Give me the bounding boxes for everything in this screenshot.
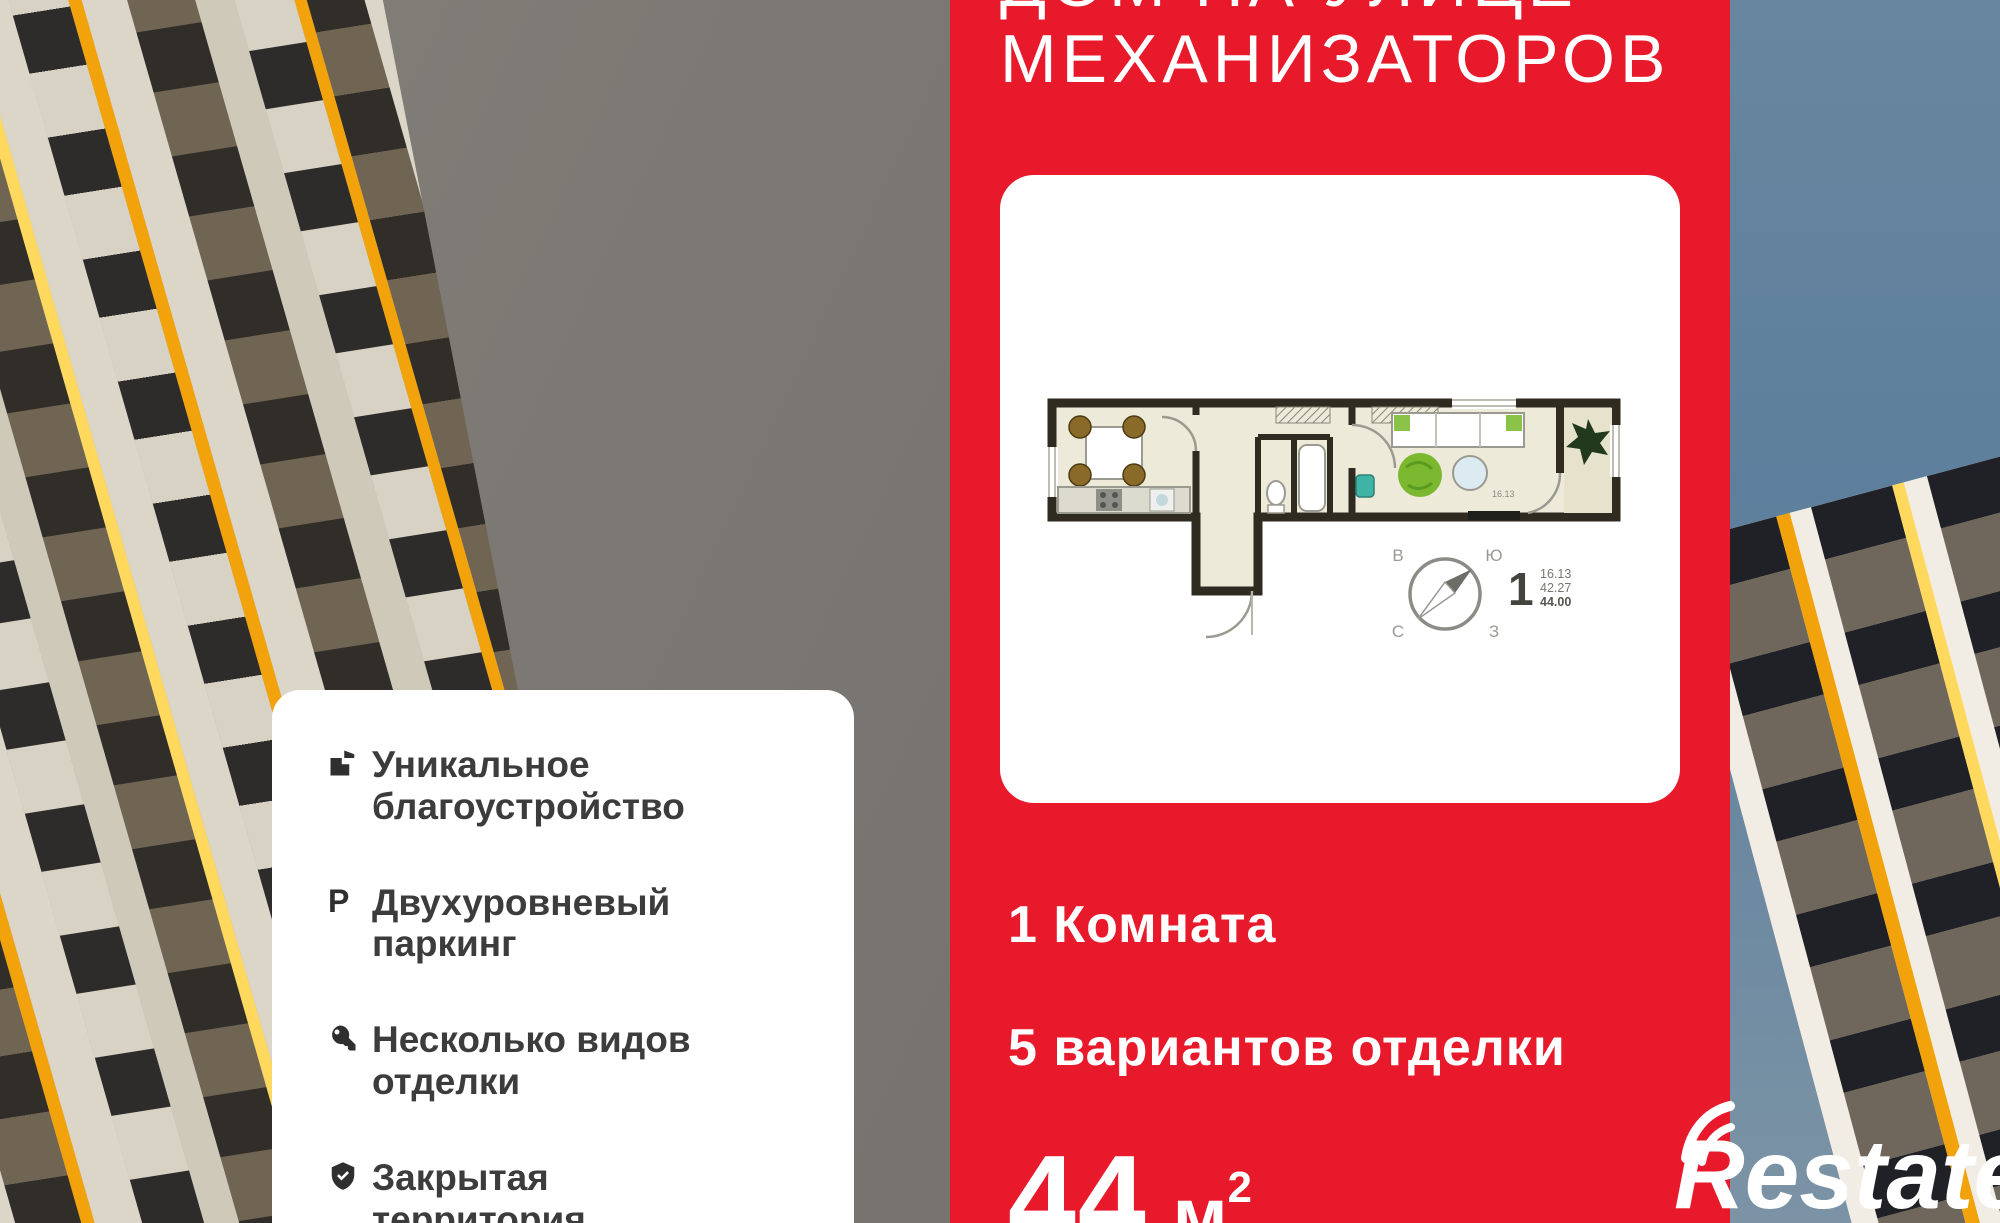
logo-text: Restate bbox=[1674, 1119, 2000, 1223]
apartment-area: 42.27 bbox=[1540, 581, 1571, 595]
shield-check-icon bbox=[328, 1161, 358, 1191]
rooms-number: 1 bbox=[1508, 563, 1534, 615]
feature-text: Двухуровневый паркинг bbox=[372, 882, 717, 966]
floor-plan: 16.13 В Ю С З 1 16.13 42.27 bbox=[1000, 175, 1680, 803]
compass: В Ю С З bbox=[1392, 546, 1503, 641]
feature-item-closed-territory: Закрытая территория bbox=[328, 1157, 854, 1223]
feature-text: Несколько видов отделки bbox=[372, 1019, 717, 1103]
window-balcony bbox=[1610, 425, 1622, 477]
sofa-plant bbox=[1394, 415, 1410, 431]
feature-item-parking: Р Двухуровневый паркинг bbox=[328, 882, 854, 966]
sofa-plant bbox=[1506, 415, 1522, 431]
restate-logo: Restate bbox=[1652, 1096, 2000, 1223]
total-area-line: 44 м2 bbox=[1008, 1128, 1252, 1223]
compass-south: Ю bbox=[1485, 546, 1502, 565]
stove bbox=[1096, 489, 1122, 511]
washbasin bbox=[1356, 475, 1374, 497]
entry-door-arc bbox=[1206, 591, 1252, 637]
listing-ad-banner: ДОМ НА УЛИЦЕ МЕХАНИЗАТОРОВ bbox=[0, 0, 2000, 1223]
building-photo-right bbox=[1730, 0, 2000, 1223]
round-table bbox=[1453, 456, 1487, 490]
bathtub bbox=[1299, 445, 1325, 511]
complex-title-line2: МЕХАНИЗАТОРОВ bbox=[1000, 20, 1670, 98]
area-superscript: 2 bbox=[1227, 1163, 1251, 1212]
sofa bbox=[1392, 413, 1524, 447]
parking-icon: Р bbox=[328, 886, 358, 916]
feature-item-finishes: Несколько видов отделки bbox=[328, 1019, 854, 1103]
feature-text: Закрытая территория bbox=[372, 1157, 717, 1223]
info-panel: ДОМ НА УЛИЦЕ МЕХАНИЗАТОРОВ bbox=[950, 0, 1730, 1223]
chair bbox=[1069, 416, 1091, 438]
living-area-label: 16.13 bbox=[1492, 489, 1515, 499]
wardrobe-hall bbox=[1276, 407, 1330, 423]
features-card: Уникальное благоустройство Р Двухуровнев… bbox=[272, 690, 854, 1223]
rooms-count-line: 1 Комната bbox=[1008, 895, 1276, 955]
finish-options-line: 5 вариантов отделки bbox=[1008, 1018, 1566, 1078]
tv bbox=[1468, 511, 1520, 520]
area-unit: м2 bbox=[1152, 1173, 1252, 1223]
area-value: 44 bbox=[1008, 1130, 1148, 1223]
chair bbox=[1123, 464, 1145, 486]
living-area: 16.13 bbox=[1540, 567, 1571, 581]
key-icon bbox=[328, 1023, 358, 1053]
feature-item-landscaping: Уникальное благоустройство bbox=[328, 744, 854, 828]
chair bbox=[1069, 464, 1091, 486]
compass-west: З bbox=[1489, 622, 1499, 641]
feature-text: Уникальное благоустройство bbox=[372, 744, 717, 828]
toilet bbox=[1267, 481, 1285, 505]
compass-east: В bbox=[1392, 546, 1403, 565]
areas-block: 1 16.13 42.27 44.00 bbox=[1508, 563, 1571, 615]
plant-large bbox=[1398, 453, 1442, 497]
floor-plan-card: 16.13 В Ю С З 1 16.13 42.27 bbox=[1000, 175, 1680, 803]
compass-north: С bbox=[1392, 622, 1404, 641]
window-top bbox=[1452, 397, 1516, 409]
building-icon bbox=[328, 748, 358, 778]
window-left bbox=[1046, 447, 1058, 497]
chair bbox=[1123, 416, 1145, 438]
complex-title-line1-cropped: ДОМ НА УЛИЦЕ bbox=[1000, 0, 1578, 22]
total-area: 44.00 bbox=[1540, 595, 1571, 609]
